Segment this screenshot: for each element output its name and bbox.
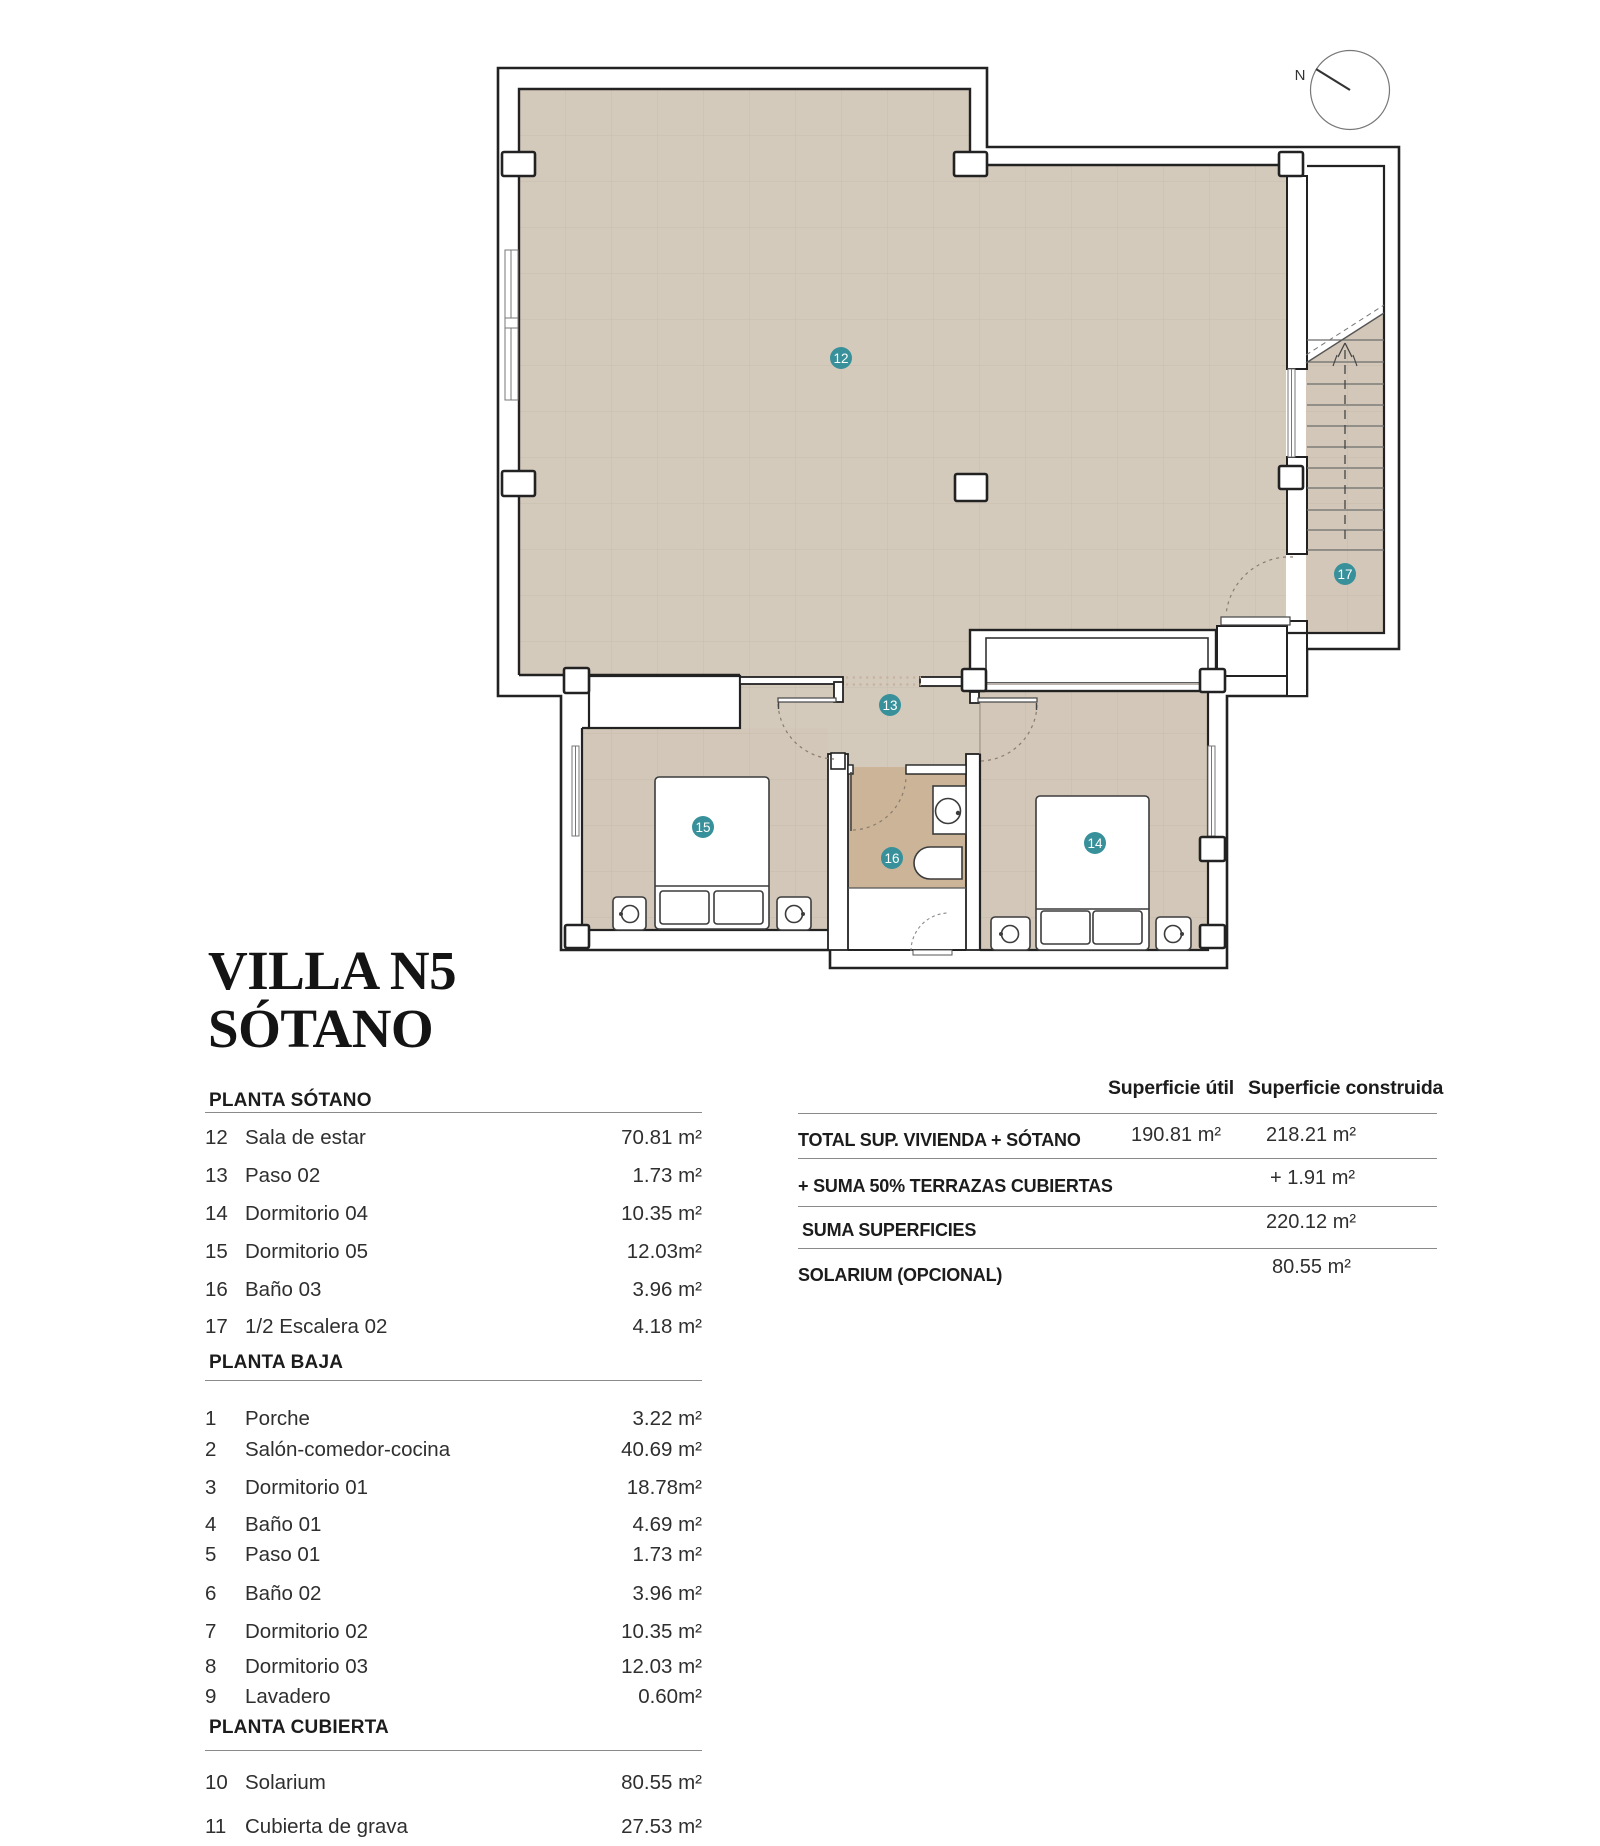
svg-text:15: 15 xyxy=(695,820,710,835)
svg-text:16: 16 xyxy=(884,851,899,866)
svg-text:17: 17 xyxy=(1337,567,1352,582)
svg-text:13: 13 xyxy=(882,698,897,713)
svg-text:12: 12 xyxy=(833,351,848,366)
svg-text:14: 14 xyxy=(1087,836,1103,851)
svg-text:N: N xyxy=(1295,67,1306,84)
